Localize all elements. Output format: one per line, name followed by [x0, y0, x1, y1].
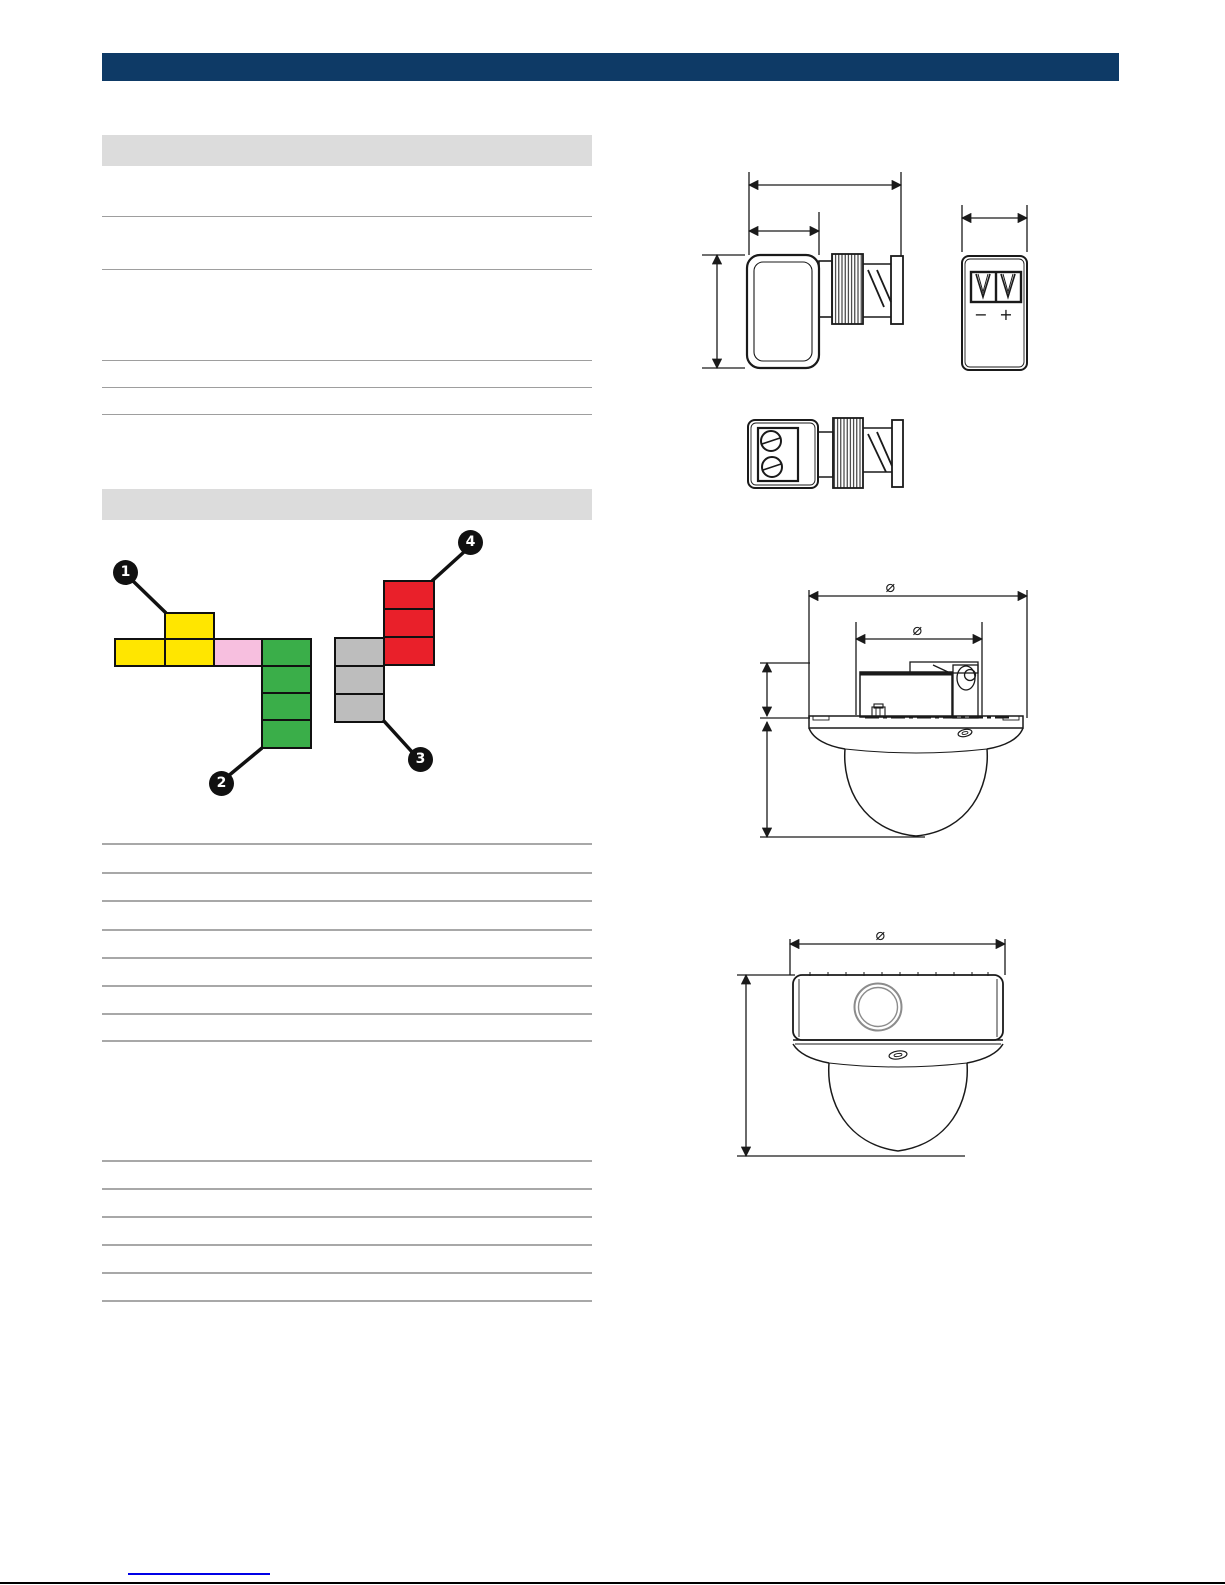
table-rule — [102, 1188, 592, 1190]
table-rule — [102, 900, 592, 902]
diameter-symbol: ⌀ — [875, 925, 885, 944]
bnc-plug — [818, 418, 903, 488]
table-rule — [102, 957, 592, 959]
camera-housing — [793, 972, 1003, 1044]
dimension-lines — [760, 590, 1027, 837]
table-rule — [102, 387, 592, 388]
table-rule — [102, 872, 592, 874]
title-bar — [102, 53, 1119, 81]
camera-back-box — [860, 662, 978, 718]
terminal-block-front-view — [962, 256, 1027, 370]
callout-badge-3: 3 — [408, 747, 433, 772]
section-header-bar — [102, 489, 592, 520]
table-rule — [102, 414, 592, 415]
bnc-screw-terminal-drawing — [740, 410, 910, 500]
table-rule — [102, 216, 592, 217]
dimension-lines — [737, 939, 1005, 1156]
terminal-body — [748, 420, 818, 488]
footer-rule — [0, 1582, 1225, 1584]
table-rule — [102, 929, 592, 931]
diameter-symbol: ⌀ — [912, 620, 922, 639]
ceiling-plate-and-dome — [809, 716, 1023, 836]
bnc-connector-dimension-drawing: − + — [690, 160, 1040, 390]
plus-symbol: + — [999, 305, 1012, 324]
table-rule — [102, 1216, 592, 1218]
minus-symbol: − — [974, 305, 987, 324]
section-header-bar — [102, 135, 592, 166]
callout-badge-2: 2 — [209, 771, 234, 796]
table-rule — [102, 1300, 592, 1302]
dome-camera-flush-drawing: ⌀ ⌀ — [735, 575, 1040, 845]
table-rule — [102, 1040, 592, 1042]
table-rule — [102, 985, 592, 987]
footer-link-underline[interactable] — [128, 1573, 270, 1575]
diameter-symbol: ⌀ — [885, 577, 895, 596]
callout-badge-1: 1 — [113, 560, 138, 585]
table-rule — [102, 1013, 592, 1015]
dome-camera-surface-drawing: ⌀ — [725, 925, 1015, 1165]
table-rule — [102, 843, 592, 845]
bnc-connector-body — [747, 254, 903, 368]
table-rule — [102, 1160, 592, 1162]
document-page: 1 2 3 4 — [0, 0, 1225, 1585]
dome-bubble — [793, 1044, 1003, 1151]
table-rule — [102, 269, 592, 270]
table-rule — [102, 360, 592, 361]
table-rule — [102, 1244, 592, 1246]
callout-leader-lines — [95, 530, 520, 810]
callout-badge-4: 4 — [458, 530, 483, 555]
dimension-lines — [702, 172, 1027, 368]
table-rule — [102, 1272, 592, 1274]
